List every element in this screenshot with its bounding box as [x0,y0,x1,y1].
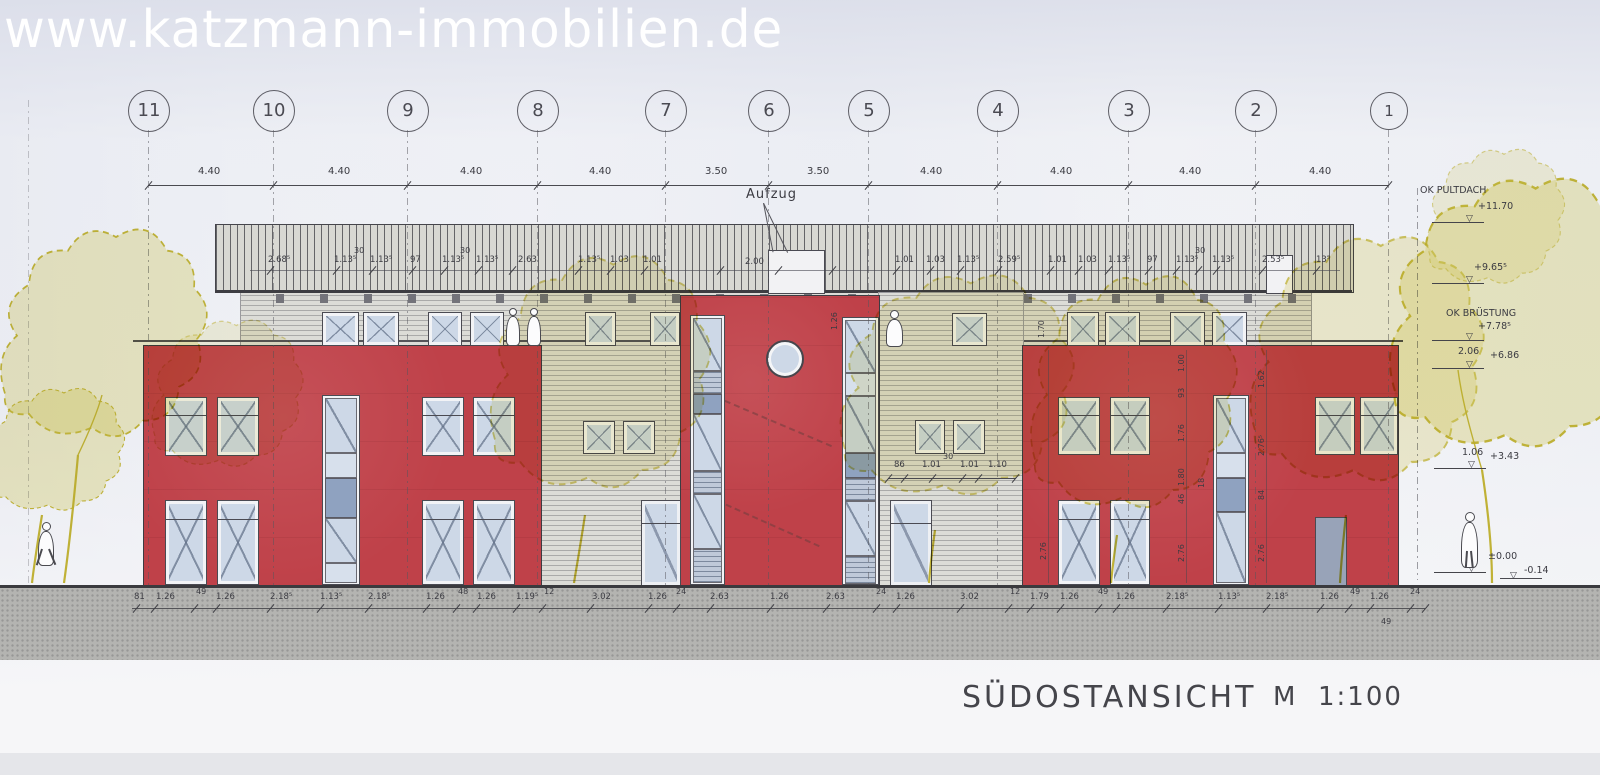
dim-tick [1367,604,1375,613]
person-standing [1461,512,1478,568]
dim-label: 49 [1098,588,1108,596]
dim-label: 30 [1195,247,1205,255]
dim-label: 24 [876,588,886,596]
dim-tick [333,266,341,275]
dim-tick [1422,604,1430,613]
dim-tick [929,474,937,483]
dim-label: 2.59⁵ [998,256,1020,265]
dim-label: 1.62 [1258,370,1266,388]
dim-label: 24 [1410,588,1420,596]
roof-dim-line [250,270,1340,271]
dim-tick [823,604,831,613]
dim-label: 2.68⁵ [268,256,290,265]
dim-tick [1263,604,1271,613]
dim-label: 13⁵ [1316,256,1330,265]
dim-tick [885,474,893,483]
dim-label: 1.01 [895,256,914,265]
dim-tick [270,181,278,190]
dim-tick [267,604,275,613]
dim-label: 1.13⁵ [1212,256,1234,265]
dim-tick [1173,266,1181,275]
scale-value: 1:100 [1318,682,1403,712]
dim-tick [717,266,725,275]
dim-label: 2.76 [1040,542,1048,560]
level-value: +7.78⁵ [1478,322,1511,332]
dim-tick [423,604,431,613]
dim-label: 4.40 [589,167,611,177]
level-line [1432,340,1484,341]
dim-tick [539,604,547,613]
dim-label: 3.02 [960,593,979,602]
dim-label: 2.18⁵ [270,593,292,602]
grid-axis-circle: 8 [517,90,559,132]
person-terrace [527,308,541,346]
dim-label: 2.76 [1258,544,1266,562]
dim-label: 1.26 [216,593,235,602]
dim-tick [641,266,649,275]
dim-tick [707,604,715,613]
dim-label: 2.00 [745,258,764,267]
top-dim-line [148,185,1388,186]
dim-label: 4.40 [1309,167,1331,177]
vert-dim-line [1048,350,1049,583]
dim-tick [995,266,1003,275]
grid-axis-circle: 7 [645,90,687,132]
dim-tick [662,181,670,190]
dim-tick [1047,266,1055,275]
dim-label: 12 [544,588,554,596]
dim-label: 84 [1258,490,1266,500]
dim-tick [775,266,783,275]
leader-line [763,203,774,252]
grid-axis-circle: 6 [748,90,790,132]
dim-tick [441,266,449,275]
dim-label: 30 [354,247,364,255]
level-label: OK BRÜSTUNG [1446,309,1516,319]
dim-tick [1213,266,1221,275]
dim-tick [409,266,417,275]
dim-label: 2.53⁵ [1262,256,1284,265]
level-value: +11.70 [1478,202,1513,212]
dim-label: 1.26 [1060,593,1079,602]
dim-tick [893,266,901,275]
grid-axis-circle: 5 [848,90,890,132]
level-value: +9.65⁵ [1474,263,1507,273]
dim-tick [927,266,935,275]
dim-label: 3.02 [592,593,611,602]
level-marker-icon: ▽ [1468,461,1475,470]
dim-label: 1.13⁵ [578,256,600,265]
grid-axis-circle: 9 [387,90,429,132]
dim-tick [513,604,521,613]
dim-label: 97 [1147,256,1158,265]
dim-label: 1.80 [1178,468,1186,486]
dim-label: 1.01 [643,256,662,265]
dim-label: 18 [1198,478,1206,488]
dim-label: 1.13⁵ [476,256,498,265]
dim-tick [317,604,325,613]
dim-tick [145,181,153,190]
level-value: +6.86 [1490,351,1519,361]
level-line [1432,368,1484,369]
dim-tick [1195,266,1203,275]
grid-axis-circle: 10 [253,90,295,132]
dim-tick [1317,604,1325,613]
dim-label: 1.03 [926,256,945,265]
elevation-drawing: 11 10 9 8 7 6 5 4 3 2 1 4.40 4.40 4.40 4… [0,0,1600,775]
dim-label: 1.13⁵ [370,256,392,265]
dim-tick [151,604,159,613]
dim-label: 3.50 [807,167,829,177]
dim-tick [901,474,909,483]
dim-label: 1.00 [1178,354,1186,372]
scan-edge-band [0,753,1600,775]
dim-label: 48 [458,588,468,596]
dim-tick [1385,181,1393,190]
dim-tick [473,604,481,613]
dim-tick [213,604,221,613]
grid-axis-circle: 3 [1108,90,1150,132]
dim-tick [453,604,461,613]
dim-label: 49 [196,588,206,596]
dim-label: 1.26 [770,593,789,602]
level-label: 1.06 [1462,448,1483,458]
dim-label: 97 [410,256,421,265]
dim-label: 2.18⁵ [1166,593,1188,602]
dim-label: 1.26 [156,593,175,602]
dim-label: 2.18⁵ [368,593,390,602]
dim-tick [1105,266,1113,275]
dim-tick [267,266,275,275]
dim-tick [1057,604,1065,613]
dim-tick [1259,266,1267,275]
level-line [1434,572,1486,573]
grid-axis-circle: 1 [1370,92,1408,130]
dim-tick [959,474,967,483]
dim-label: 49 [1381,618,1391,626]
level-value: +3.43 [1490,452,1519,462]
dim-label: 1.26 [896,593,915,602]
dim-label: 12 [1010,588,1020,596]
dim-tick [893,604,901,613]
dim-tick [191,604,199,613]
dim-label: 2.63 [826,593,845,602]
level-value: -0.14 [1524,566,1549,576]
dim-label: 86 [894,461,905,470]
dim-label: 24 [676,588,686,596]
mid-dim-line [888,478,1016,479]
dim-label: 81 [134,593,145,602]
level-label: 2.06 [1458,347,1479,357]
dim-label: 1.19⁵ [516,593,538,602]
level-marker-icon: ▽ [1466,333,1473,342]
dim-tick [607,266,615,275]
dim-label: 1.26 [648,593,667,602]
dim-tick [475,266,483,275]
grid-axis-circle: 11 [128,90,170,132]
dim-tick [1407,604,1415,613]
dim-tick [1313,266,1321,275]
dim-label: 1.70 [1038,320,1046,338]
annotations: 11 10 9 8 7 6 5 4 3 2 1 4.40 4.40 4.40 4… [0,0,1600,775]
dim-label: 1.13⁵ [1218,593,1240,602]
dim-label: 4.40 [920,167,942,177]
dim-tick [957,604,965,613]
dim-tick [575,266,583,275]
dim-label: 1.26 [477,593,496,602]
dim-label: 4.40 [1179,167,1201,177]
dim-label: 2.76 [1178,544,1186,562]
dim-label: 93 [1178,388,1186,398]
dim-label: 1.01 [922,461,941,470]
dim-tick [133,604,141,613]
dim-tick [587,604,595,613]
dim-label: 1.01 [1048,256,1067,265]
dim-label: 1.13⁵ [334,256,356,265]
dim-label: 1.26 [831,312,839,330]
dim-tick [1012,474,1020,483]
dim-label: 2.18⁵ [1266,593,1288,602]
dim-label: 4.40 [460,167,482,177]
dim-tick [829,266,837,275]
dim-label: 30 [460,247,470,255]
dim-label: 46 [1178,494,1186,504]
dim-label: 1.13⁵ [1108,256,1130,265]
dim-tick [1163,604,1171,613]
person-walking [38,522,54,566]
dim-tick [1215,604,1223,613]
dim-label: 1.79 [1030,593,1049,602]
dim-tick [1075,266,1083,275]
dim-tick [994,181,1002,190]
elevator-label: Aufzug [746,187,797,202]
dim-label: 1.13⁵ [320,593,342,602]
dim-label: 1.13⁵ [442,256,464,265]
dim-tick [369,266,377,275]
dim-tick [1252,181,1260,190]
dim-label: 1.26 [1116,593,1135,602]
watermark: www.katzmann-immobilien.de [4,0,783,60]
dim-tick [873,604,881,613]
person-terrace [506,308,520,346]
dim-label: 30 [943,453,953,461]
dim-label: 1.26 [1320,593,1339,602]
level-marker-icon: ▽ [1466,215,1473,224]
level-line [1432,222,1484,223]
dim-tick [645,604,653,613]
dim-tick [404,181,412,190]
grid-axis-circle: 4 [977,90,1019,132]
level-value: ±0.00 [1488,552,1517,562]
dim-tick [365,604,373,613]
dim-label: 4.40 [328,167,350,177]
vert-dim-line [1186,350,1187,583]
dim-label: 1.76 [1178,424,1186,442]
level-label: OK PULTDACH [1420,186,1486,196]
person-balcony [886,310,903,347]
dim-label: 49 [1350,588,1360,596]
dim-tick [1125,181,1133,190]
dim-label: 2.63 [518,256,537,265]
dim-tick [957,266,965,275]
dim-label: 1.26 [1370,593,1389,602]
dim-tick [1113,604,1121,613]
level-marker-icon: ▽ [1510,572,1517,581]
dim-label: 2.76⁵ [1258,435,1266,456]
level-line [1434,468,1486,469]
dim-label: 2.63 [710,593,729,602]
dim-label: 1.10 [988,461,1007,470]
level-marker-icon: ▽ [1466,361,1473,370]
dim-label: 1.26 [426,593,445,602]
dim-tick [1095,604,1103,613]
dim-label: 1.03 [610,256,629,265]
view-title: SÜDOSTANSICHT [962,680,1256,715]
dim-label: 4.40 [198,167,220,177]
dim-tick [1005,604,1013,613]
dim-tick [1145,266,1153,275]
bottom-dim-line [132,608,1425,609]
dim-tick [1027,604,1035,613]
dim-label: 1.03 [1078,256,1097,265]
dim-label: 1.01 [960,461,979,470]
level-line [1432,283,1484,284]
dim-tick [767,604,775,613]
dim-tick [509,266,517,275]
grid-axis-circle: 2 [1235,90,1277,132]
dim-label: 1.13⁵ [957,256,979,265]
dim-tick [975,474,983,483]
dim-tick [865,181,873,190]
dim-tick [534,181,542,190]
dim-tick [673,604,681,613]
dim-label: 1.13⁵ [1176,256,1198,265]
dim-tick [1345,604,1353,613]
vert-dim-line [1266,350,1267,583]
scale-prefix: M [1273,682,1298,712]
level-marker-icon: ▽ [1466,276,1473,285]
dim-label: 4.40 [1050,167,1072,177]
dim-label: 3.50 [705,167,727,177]
